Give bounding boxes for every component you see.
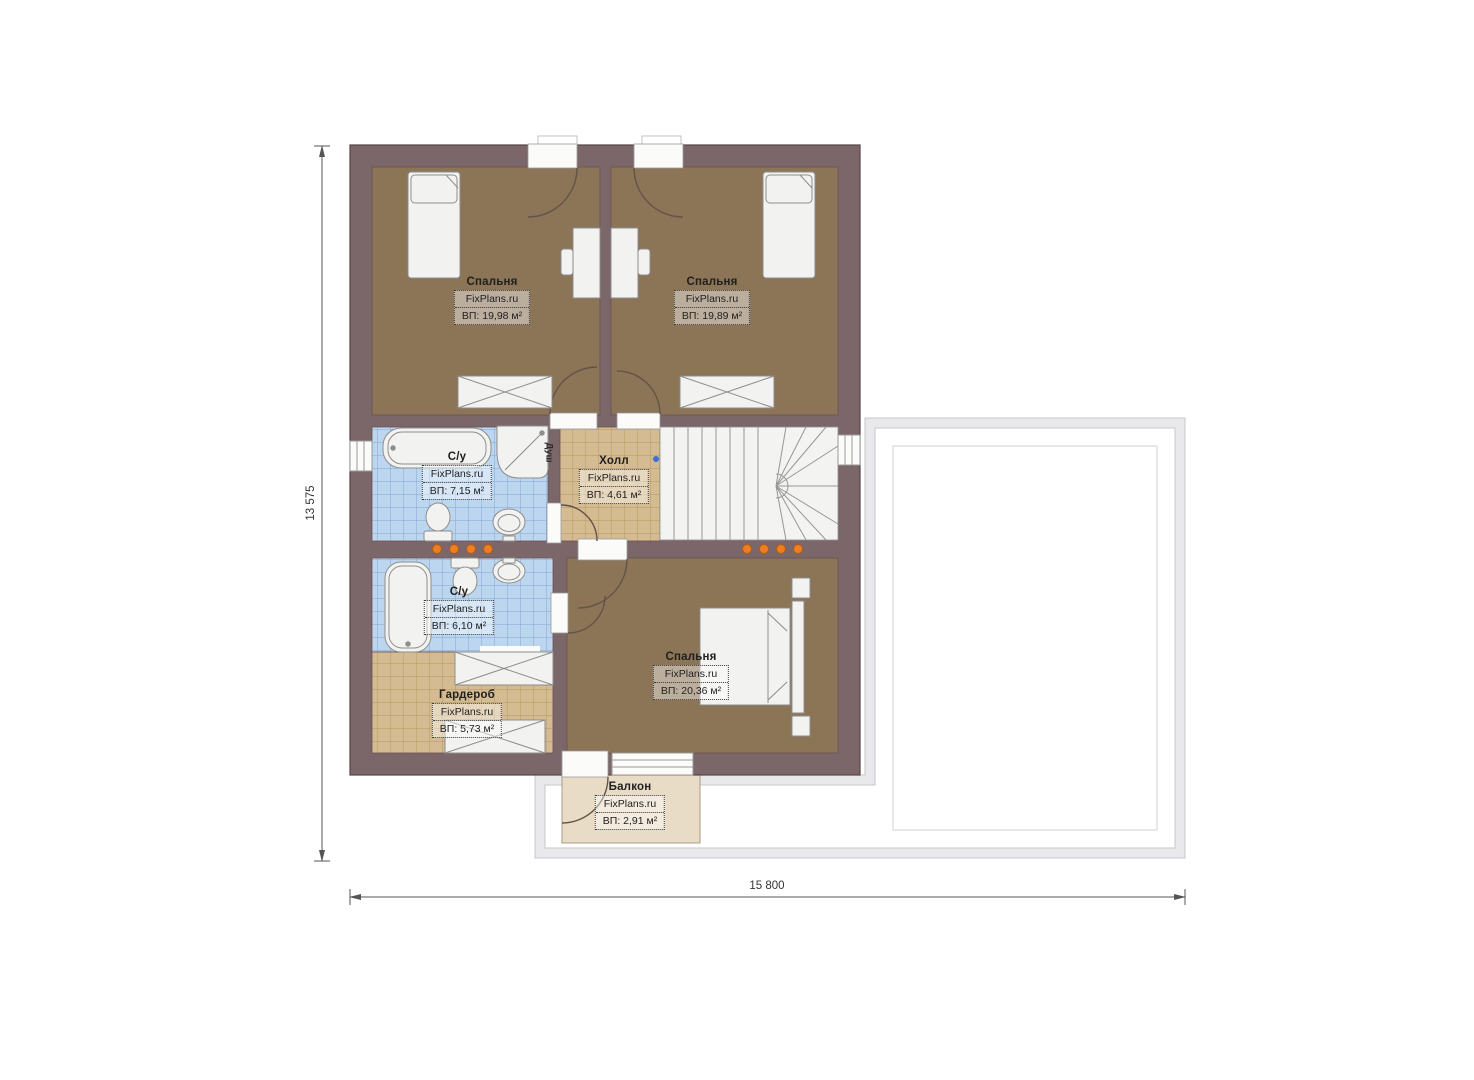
room-label-wardrobe: Гардероб FixPlans.ru ВП: 5,73 м² (432, 689, 502, 738)
room-area: ВП: 5,73 м² (433, 721, 501, 737)
room-name: Спальня (454, 276, 530, 288)
room-area: ВП: 19,89 м² (675, 308, 749, 324)
brand-text: FixPlans.ru (654, 666, 728, 683)
room-info-box: FixPlans.ru ВП: 6,10 м² (424, 600, 494, 635)
brand-text: FixPlans.ru (580, 470, 648, 487)
nightstand-1 (792, 578, 810, 598)
toilet-1-tank (424, 531, 452, 541)
headboard (792, 601, 804, 713)
room-area: ВП: 7,15 м² (423, 483, 491, 499)
floor-plan-drawing (0, 0, 1474, 1080)
room-area: ВП: 4,61 м² (580, 487, 648, 503)
dimension-height-label: 13 575 (305, 478, 319, 528)
door-bedroom-3 (578, 539, 627, 560)
room-name: Гардероб (432, 689, 502, 701)
chair-1 (561, 249, 573, 275)
room-name: С/у (424, 586, 494, 598)
door-bathroom-1 (547, 503, 561, 543)
room-label-bedroom-1: Спальня FixPlans.ru ВП: 19,98 м² (454, 276, 530, 325)
room-name: Балкон (595, 781, 665, 793)
brand-text: FixPlans.ru (433, 704, 501, 721)
room-name: С/у (422, 451, 492, 463)
brand-text: FixPlans.ru (675, 291, 749, 308)
marker-dot (653, 456, 659, 462)
room-info-box: FixPlans.ru ВП: 20,36 м² (653, 665, 729, 700)
door-bedroom-1-top (528, 144, 577, 168)
floor-plan-page: Спальня FixPlans.ru ВП: 19,98 м² Спальня… (0, 0, 1474, 1080)
door-bedroom-2-landing (617, 413, 660, 429)
nightstand-2 (792, 716, 810, 736)
chair-2 (638, 249, 650, 275)
room-name: Спальня (653, 651, 729, 663)
shower-annotation: Душ (544, 442, 555, 462)
room-area: ВП: 19,98 м² (455, 308, 529, 324)
room-area: ВП: 6,10 м² (425, 618, 493, 634)
room-label-bedroom-3: Спальня FixPlans.ru ВП: 20,36 м² (653, 651, 729, 700)
brand-text: FixPlans.ru (425, 601, 493, 618)
room-area: ВП: 20,36 м² (654, 683, 728, 699)
window-bathroom-1 (350, 441, 372, 471)
room-label-balcony: Балкон FixPlans.ru ВП: 2,91 м² (595, 781, 665, 830)
window-stairs (838, 435, 860, 465)
desk-1 (573, 228, 600, 298)
door-bedroom-1-hall (550, 413, 597, 429)
toilet-1 (426, 503, 450, 531)
room-info-box: FixPlans.ru ВП: 19,89 м² (674, 290, 750, 325)
room-label-bathroom-1: С/у FixPlans.ru ВП: 7,15 м² (422, 451, 492, 500)
window-balcony (612, 753, 693, 775)
pillow-2 (766, 175, 812, 203)
brand-text: FixPlans.ru (455, 291, 529, 308)
door-balcony (562, 751, 608, 777)
desk-2 (611, 228, 638, 298)
room-label-bathroom-2: С/у FixPlans.ru ВП: 6,10 м² (424, 586, 494, 635)
brand-text: FixPlans.ru (423, 466, 491, 483)
dimension-width-label: 15 800 (749, 880, 784, 892)
room-label-hall: Холл FixPlans.ru ВП: 4,61 м² (579, 455, 649, 504)
door-bedroom-2-top (634, 144, 683, 168)
room-info-box: FixPlans.ru ВП: 5,73 м² (432, 703, 502, 738)
room-info-box: FixPlans.ru ВП: 7,15 м² (422, 465, 492, 500)
room-info-box: FixPlans.ru ВП: 4,61 м² (579, 469, 649, 504)
room-info-box: FixPlans.ru ВП: 19,98 м² (454, 290, 530, 325)
room-area: ВП: 2,91 м² (596, 813, 664, 829)
room-label-bedroom-2: Спальня FixPlans.ru ВП: 19,89 м² (674, 276, 750, 325)
room-info-box: FixPlans.ru ВП: 2,91 м² (595, 795, 665, 830)
room-name: Спальня (674, 276, 750, 288)
door-bathroom-2 (551, 593, 568, 633)
room-name: Холл (579, 455, 649, 467)
brand-text: FixPlans.ru (596, 796, 664, 813)
